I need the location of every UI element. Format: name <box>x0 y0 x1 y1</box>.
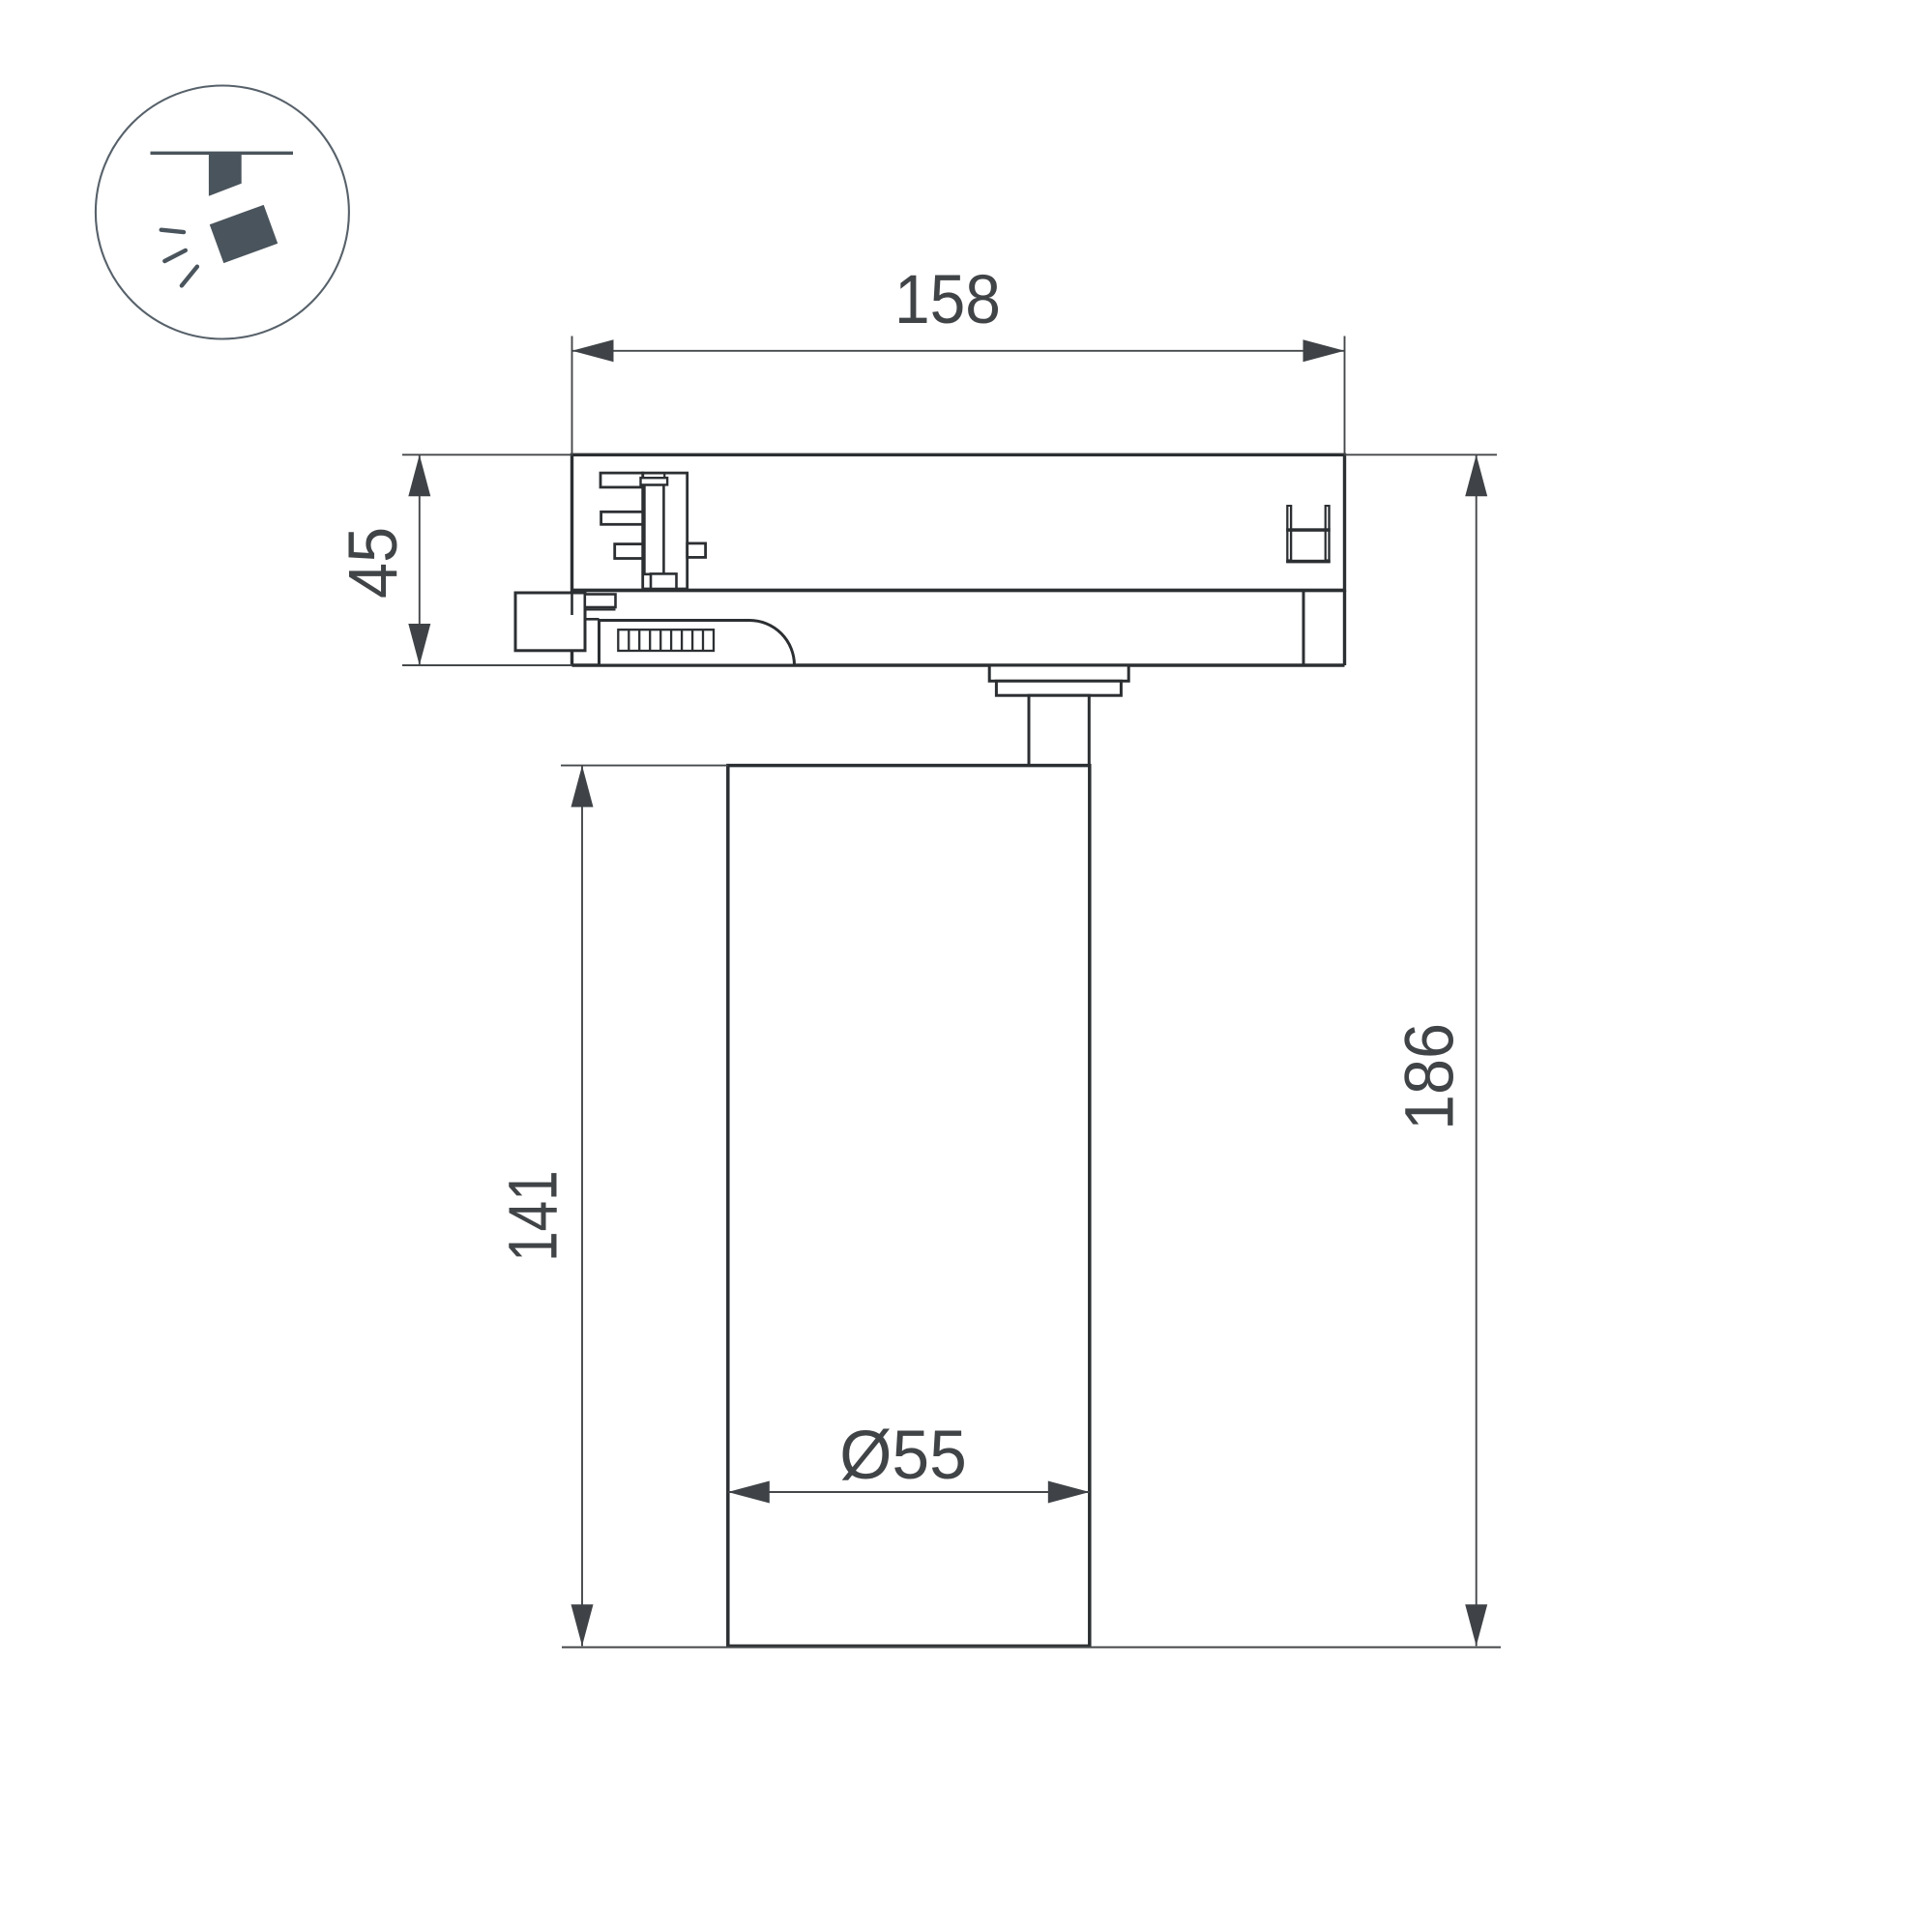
svg-text:141: 141 <box>496 1170 572 1262</box>
svg-text:158: 158 <box>894 262 1001 338</box>
svg-text:45: 45 <box>336 527 412 599</box>
svg-text:Ø55: Ø55 <box>839 1418 967 1494</box>
svg-text:186: 186 <box>1391 1023 1468 1130</box>
